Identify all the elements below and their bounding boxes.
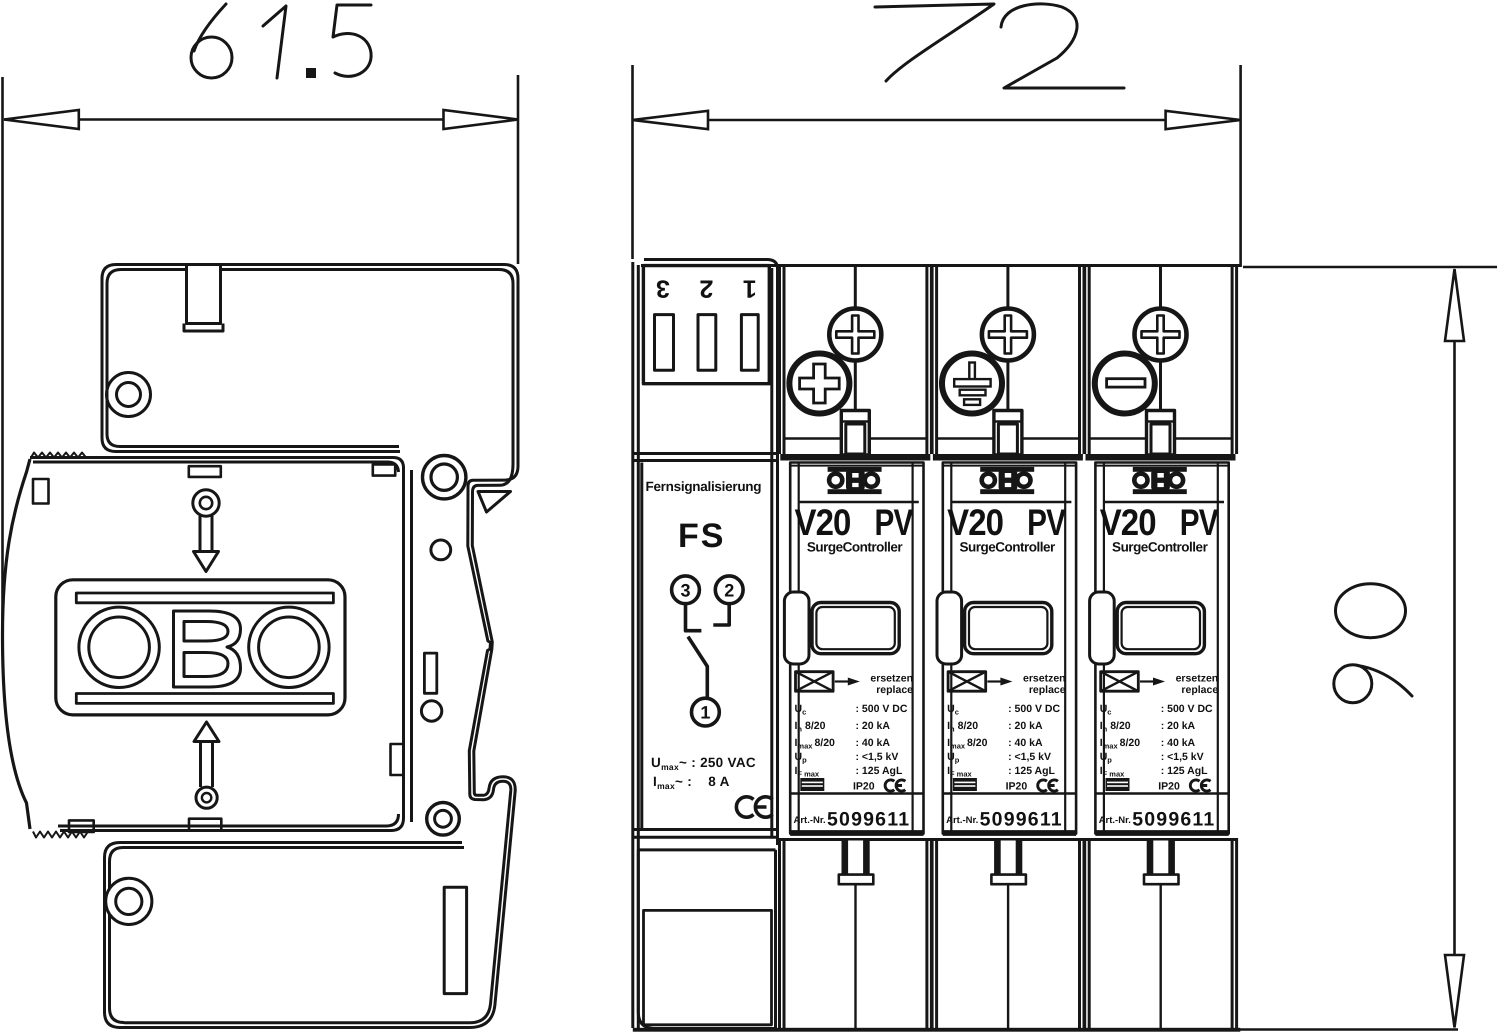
svg-text:Art.-Nr.: Art.-Nr. [794, 815, 826, 826]
svg-text:1: 1 [743, 275, 757, 303]
svg-text:FS: FS [678, 517, 725, 555]
svg-text:IP20: IP20 [853, 781, 875, 793]
svg-text:: 500 V DC: : 500 V DC [856, 703, 908, 715]
svg-text:SurgeController: SurgeController [807, 540, 904, 555]
svg-text:2: 2 [699, 275, 713, 303]
svg-text:5099611: 5099611 [827, 809, 910, 831]
svg-text:3: 3 [680, 580, 690, 600]
svg-text:1: 1 [700, 703, 710, 723]
svg-text:ersetzen: ersetzen [870, 673, 913, 685]
svg-text:2: 2 [724, 580, 734, 600]
svg-text:replace: replace [876, 684, 913, 696]
svg-text:: 40 kA: : 40 kA [856, 737, 891, 749]
svg-text:: 125 AgL: : 125 AgL [856, 765, 903, 777]
svg-text:: <1,5 kV: : <1,5 kV [856, 751, 899, 763]
svg-text:: 20 kA: : 20 kA [856, 720, 891, 732]
svg-text:Fernsignalisierung: Fernsignalisierung [646, 479, 762, 494]
svg-text:3: 3 [656, 275, 670, 303]
